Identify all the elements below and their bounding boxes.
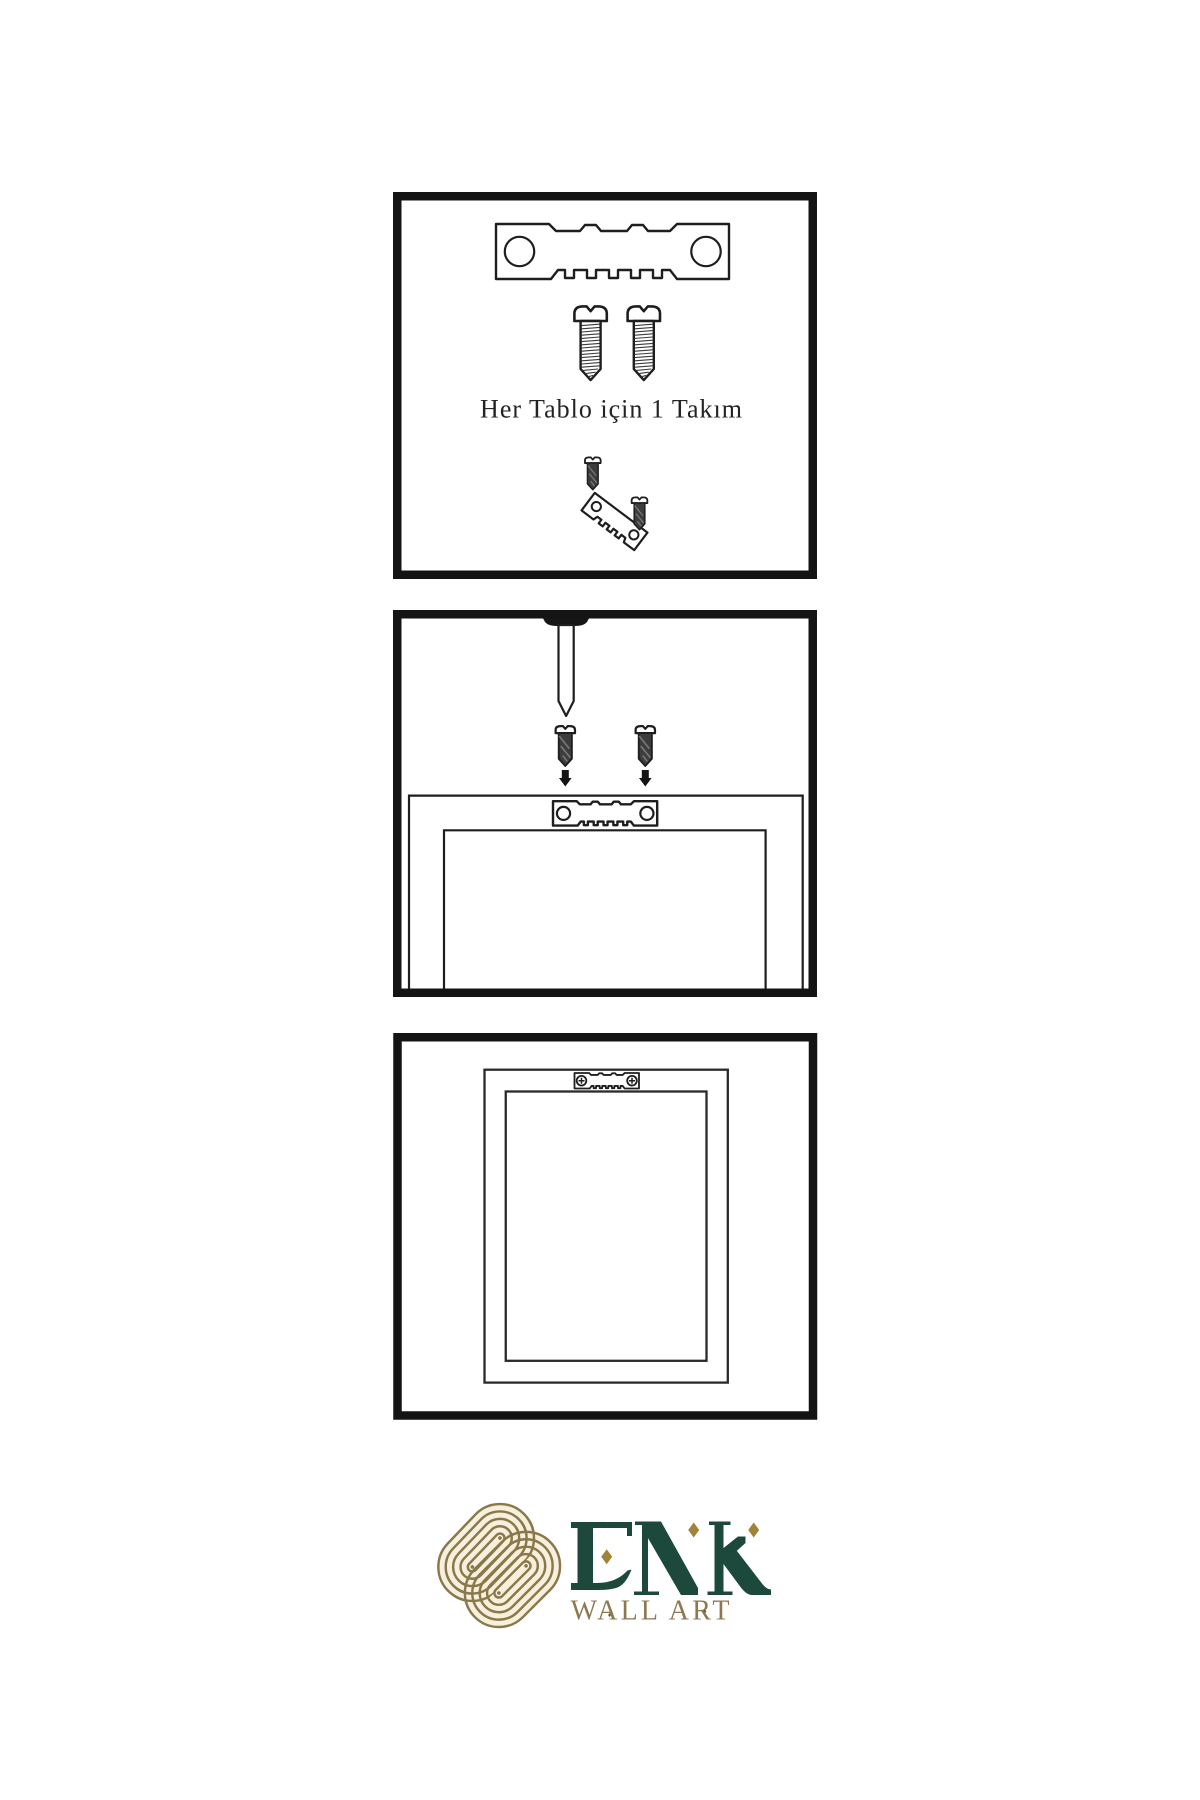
svg-text:Her Tablo için 1 Takım: Her Tablo için 1 Takım xyxy=(480,395,743,424)
svg-text:WALL ART: WALL ART xyxy=(571,1596,733,1627)
